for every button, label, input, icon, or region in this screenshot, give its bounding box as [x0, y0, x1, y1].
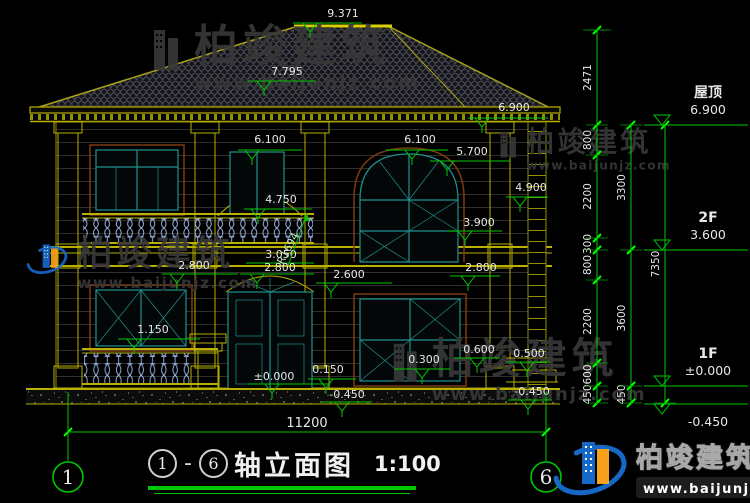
watermark-brand-url: www.baijunjz.com — [432, 384, 647, 405]
eave-cornice — [30, 107, 560, 122]
level-marker: 1F±0.000 — [644, 346, 748, 386]
elevation-marker: 4.900 — [506, 181, 548, 212]
balcony-door-2f — [218, 152, 302, 216]
dim-label: 3.600 — [690, 227, 726, 242]
window-2f-right-arched — [354, 148, 464, 262]
dim-label: 1F — [698, 346, 717, 362]
elevation-marker: ±0.000 — [248, 370, 330, 399]
elevation-marker: 0.150 — [308, 363, 356, 394]
pilaster — [301, 122, 329, 388]
elevation-marker: 3.900 — [448, 216, 502, 246]
watermark: 柏竣建筑www.baijunjz.com — [390, 338, 647, 405]
dim-label: ±0.000 — [254, 370, 295, 383]
dim-label: 7350 — [650, 251, 662, 278]
axis-range-dash: - — [184, 451, 192, 476]
dim-label: 9.371 — [327, 7, 359, 20]
dim-label: -0.450 — [329, 388, 364, 401]
elevation-marker: 1.150 — [118, 323, 200, 354]
dim-label: -0.450 — [688, 414, 728, 429]
watermark: 柏竣建筑www.baijunjz.com — [498, 128, 671, 173]
dim-label: 6 — [540, 465, 553, 489]
dim-label: 4.750 — [265, 193, 297, 206]
dim-label: 6.100 — [254, 133, 286, 146]
elevation-marker: 4.750 — [244, 193, 312, 224]
axis-bubble: 1 — [53, 392, 83, 492]
watermark: 柏竣建筑www.baijunjz.com — [150, 24, 420, 94]
dim-label: 6.100 — [404, 133, 436, 146]
dim-label: 3300 — [616, 174, 628, 201]
radius-annotation: R1694 — [275, 213, 309, 266]
level-marker: -0.450 — [644, 404, 748, 429]
brand-url: www.baijunjz.com — [643, 482, 750, 497]
dim-label: 0.150 — [312, 363, 344, 376]
dim-label: 2.600 — [333, 268, 365, 281]
title-underline-thin — [154, 493, 410, 494]
dim-label: 1.150 — [137, 323, 169, 336]
elevation-marker: -0.450 — [322, 388, 372, 417]
dim-label: 屋顶 — [694, 85, 722, 101]
watermark-brand-name: 柏竣建筑 — [194, 24, 420, 70]
level-marker: 屋顶6.900 — [644, 85, 748, 125]
watermark-brand-name: 柏竣建筑 — [77, 236, 258, 273]
dim-label: 2.800 — [465, 261, 497, 274]
axis-bubble-end: 6 — [199, 449, 228, 478]
dim-label: 3600 — [616, 305, 628, 332]
dim-label: 6.900 — [690, 102, 726, 117]
dim-label: ±0.000 — [685, 363, 731, 378]
title-text: 轴立面图 — [234, 444, 354, 483]
dim-label: 3.050 — [265, 248, 297, 261]
newel-pier — [190, 334, 226, 388]
dim-label: 6.900 — [498, 101, 530, 114]
watermark-brand-name: 柏竣建筑 — [432, 338, 647, 382]
watermark-brand-url: www.baijunjz.com — [526, 159, 671, 173]
dim-label: 2200 — [582, 183, 594, 210]
watermark-brand-url: www.baijunjz.com — [77, 275, 258, 293]
elevation-marker: 2.600 — [316, 268, 392, 298]
elevation-marker: 2.800 — [450, 261, 500, 291]
watermark-brand-name: 柏竣建筑 — [526, 128, 671, 158]
cad-canvas: 柏竣建筑www.baijunjz.com柏竣建筑www.baijunjz.com… — [0, 0, 750, 503]
dim-label: 2F — [698, 210, 717, 226]
brand-logo-icon — [552, 436, 630, 498]
window-2f-left — [90, 145, 184, 215]
dim-label: 800 — [582, 255, 594, 275]
dim-label: 2.800 — [264, 261, 296, 274]
overall-dimension: 11200 — [64, 416, 550, 436]
watermark-brand-url: www.baijunjz.com — [194, 72, 420, 94]
entrance-door — [216, 276, 324, 398]
brand-logo: 柏竣建筑 www.baijunjz.com — [552, 436, 750, 498]
watermark: 柏竣建筑www.baijunjz.com — [26, 236, 258, 292]
dim-label: 2471 — [582, 64, 594, 91]
dim-label: 300 — [582, 234, 594, 254]
dim-label: 5.700 — [456, 145, 488, 158]
axis-bubble-start: 1 — [148, 449, 177, 478]
elevation-marker: 6.100 — [386, 133, 448, 165]
dim-label: 11200 — [286, 416, 327, 431]
window-1f-left — [90, 285, 192, 351]
title-scale: 1:100 — [374, 452, 441, 476]
level-marker: 2F3.600 — [644, 210, 748, 250]
balustrade-1f — [82, 349, 218, 384]
elevation-marker: 6.100 — [238, 133, 302, 165]
dim-label: 3.900 — [463, 216, 495, 229]
dim-label: 2200 — [582, 308, 594, 335]
title-underline — [148, 486, 416, 490]
dim-label: 1 — [62, 465, 75, 489]
brand-name: 柏竣建筑 — [636, 436, 750, 475]
dim-label: 4.900 — [515, 181, 547, 194]
drawing-title: 1 - 6 轴立面图 1:100 — [148, 444, 441, 494]
dim-label: R1694 — [275, 230, 302, 266]
